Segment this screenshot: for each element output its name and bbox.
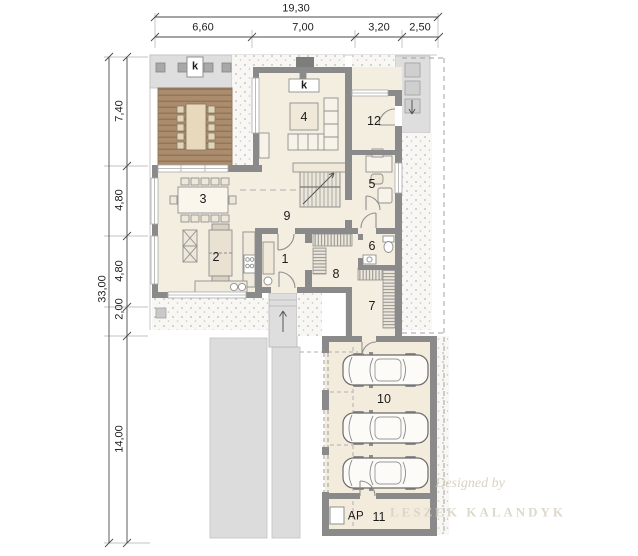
washbasin	[363, 255, 376, 264]
chimney-block	[296, 57, 314, 67]
terrace-glazing	[158, 165, 228, 172]
desk	[366, 156, 392, 172]
dim-left-seg-0: 7,40	[115, 100, 126, 121]
sideboard	[293, 163, 350, 172]
dim-left-total: 33,00	[98, 275, 109, 303]
corridor-wardrobe	[383, 270, 395, 328]
chimney-living-label: k	[301, 81, 307, 92]
chimney-terrace-label: k	[192, 62, 198, 73]
staircase	[300, 167, 340, 207]
room-label-11: 11	[373, 511, 386, 524]
window-kitchen-bottom	[168, 292, 246, 298]
wardrobe-shelf-top	[313, 234, 352, 246]
dim-top-seg-0: 6,60	[192, 23, 213, 34]
terrace-deck	[158, 88, 232, 168]
hall-basin	[264, 277, 272, 285]
window-living-left	[252, 78, 259, 133]
dim-left-seg-1: 4,80	[115, 189, 126, 210]
bench	[259, 133, 269, 158]
dim-left-seg-3: 2,00	[115, 298, 126, 319]
room-label-12: 12	[367, 115, 381, 128]
heat-pump-label: AP	[348, 511, 364, 523]
room-label-1: 1	[282, 253, 289, 266]
room-label-3: 3	[200, 193, 207, 206]
room-label-2: 2	[213, 251, 220, 264]
room-label-10: 10	[377, 393, 391, 406]
heat-pump-unit	[330, 507, 344, 524]
wardrobe-shelf-left	[313, 248, 326, 274]
armchair	[378, 188, 392, 203]
floor-plan: 19,30 6,60 7,00 3,20 2,50 33,00 7,40 4,8…	[0, 0, 638, 556]
watermark-line2: LESZEK KALANDYK	[390, 506, 566, 519]
dim-top-total: 19,30	[282, 4, 310, 15]
window-vestibule-top	[352, 90, 388, 96]
room-label-5: 5	[369, 178, 376, 191]
dim-top-seg-1: 7,00	[292, 23, 313, 34]
room-label-8: 8	[333, 268, 340, 281]
sofa-bottom	[288, 134, 327, 150]
dim-left-seg-4: 14,00	[115, 425, 126, 453]
driveway-paving	[210, 338, 267, 538]
dim-top-seg-2: 3,20	[368, 23, 389, 34]
window-office-right	[395, 163, 402, 193]
room-label-6: 6	[369, 240, 376, 253]
watermark-line1: Designed by	[435, 477, 505, 491]
dim-left-seg-2: 4,80	[115, 260, 126, 281]
room-label-9: 9	[284, 210, 291, 223]
toilet-icon	[384, 242, 393, 253]
driveway-strip-paving	[272, 347, 300, 538]
room-label-4: 4	[301, 111, 308, 124]
yard-post	[156, 308, 166, 318]
room-label-7: 7	[369, 300, 376, 313]
sink	[230, 283, 237, 290]
dim-top-seg-3: 2,50	[409, 23, 430, 34]
hall-cabinet	[263, 242, 274, 274]
garage-cars	[343, 352, 428, 491]
deck-table	[186, 104, 206, 150]
